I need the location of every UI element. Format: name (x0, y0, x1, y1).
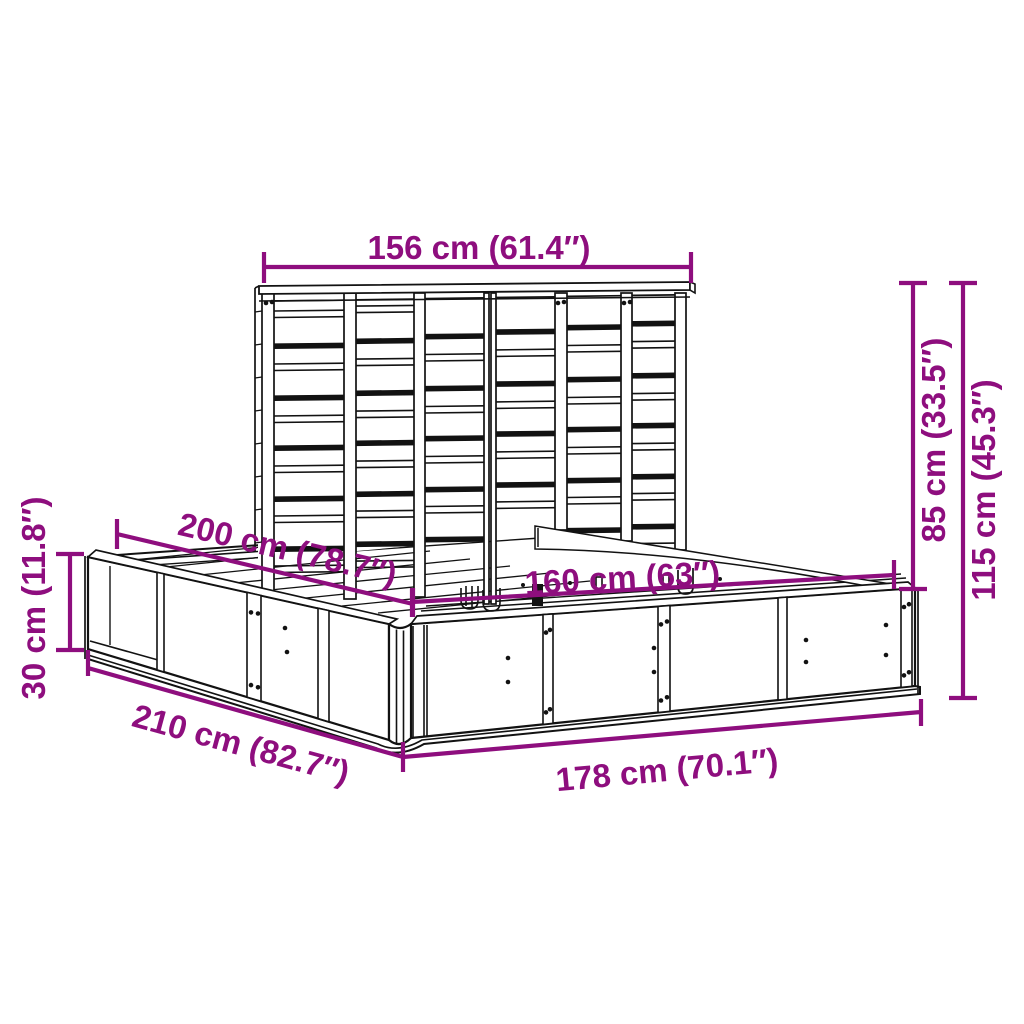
svg-text:85 cm (33.5″): 85 cm (33.5″) (915, 338, 952, 543)
svg-text:156 cm (61.4″): 156 cm (61.4″) (367, 229, 590, 266)
svg-text:115 cm (45.3″): 115 cm (45.3″) (965, 379, 1002, 600)
svg-text:30 cm (11.8″): 30 cm (11.8″) (15, 497, 52, 700)
